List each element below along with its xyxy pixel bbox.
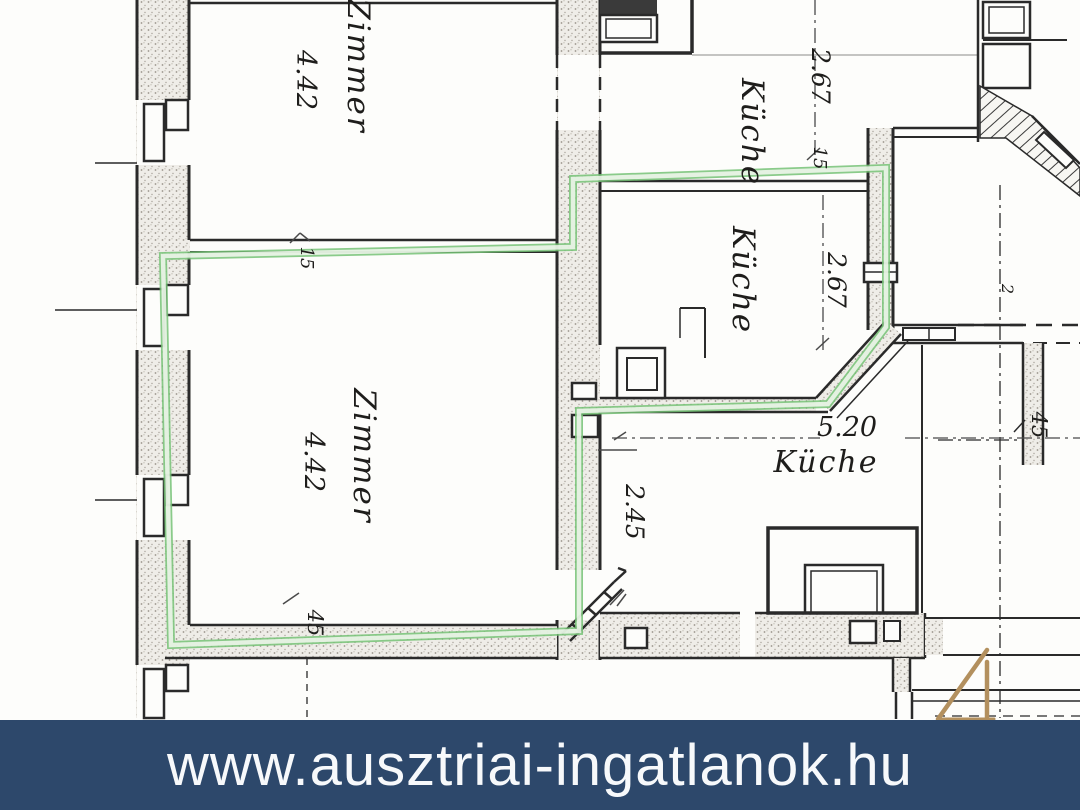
- room-size: 2.67: [806, 47, 835, 104]
- room-size: 5.20: [817, 412, 877, 443]
- room-label: Zimmer: [340, 0, 376, 134]
- watermark-banner: www.ausztriai-ingatlanok.hu: [0, 720, 1080, 810]
- dimension-label: 15: [296, 247, 317, 270]
- room-size: 4.42: [290, 49, 321, 110]
- room-label: Küche: [734, 77, 770, 186]
- watermark-url: www.ausztriai-ingatlanok.hu: [167, 732, 913, 799]
- room-label: Küche: [773, 445, 879, 480]
- dimension-label: 45: [1027, 411, 1051, 439]
- dimension-label: 15: [809, 147, 830, 170]
- room-size: 2.67: [822, 251, 851, 308]
- room-label: Zimmer: [346, 387, 382, 524]
- room-label: Küche: [725, 225, 761, 334]
- room-size: 4.42: [298, 431, 329, 492]
- window-icon: [137, 100, 190, 165]
- window-icon: [137, 665, 190, 718]
- dimension-label: 45: [303, 609, 327, 637]
- floorplan-watermark-image: Zimmer 4.42 Küche 2.67 Küche 2.67 Zimmer…: [0, 0, 1080, 810]
- dimension-label: 2: [998, 283, 1017, 294]
- dimension-label: 2.45: [620, 483, 649, 540]
- floorplan-drawing: Zimmer 4.42 Küche 2.67 Küche 2.67 Zimmer…: [0, 0, 1080, 720]
- window-icon: [137, 475, 190, 540]
